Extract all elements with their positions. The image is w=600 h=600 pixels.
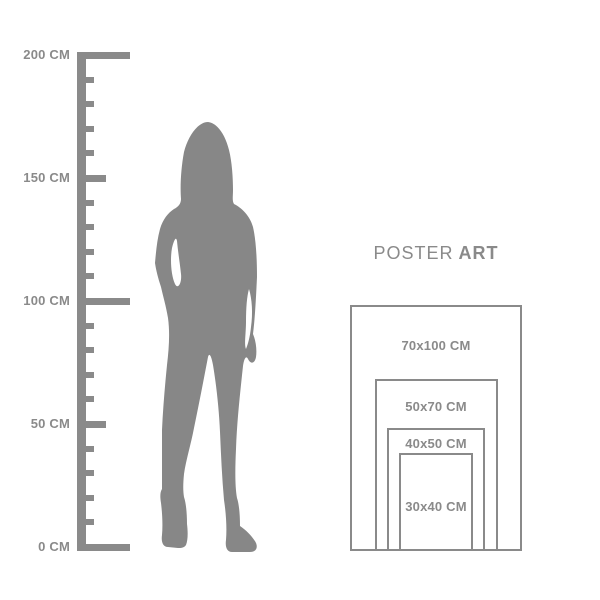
ruler-tick-minor [77,77,94,83]
ruler-tick-minor [77,273,94,279]
ruler-tick-major [77,175,106,182]
brand-title-bold: ART [459,243,499,263]
ruler-tick-minor [77,150,94,156]
brand-title-regular: POSTER [373,243,453,263]
ruler-tick-major [77,544,130,551]
ruler-tick-minor [77,224,94,230]
size-label-30x40: 30x40 CM [366,499,506,515]
brand-title: POSTERART [336,243,536,264]
ruler-label: 150 CM [0,170,70,186]
ruler-tick-major [77,421,106,428]
ruler-label: 100 CM [0,293,70,309]
ruler-tick-minor [77,101,94,107]
ruler-tick-minor [77,126,94,132]
ruler-tick-minor [77,249,94,255]
ruler-tick-minor [77,372,94,378]
ruler-label: 50 CM [0,416,70,432]
ruler-tick-minor [77,396,94,402]
ruler-tick-minor [77,495,94,501]
ruler-tick-major [77,298,130,305]
ruler-tick-minor [77,519,94,525]
ruler-tick-minor [77,200,94,206]
ruler-tick-minor [77,347,94,353]
size-label-40x50: 40x50 CM [366,436,506,452]
woman-silhouette [148,118,264,558]
ruler-tick-minor [77,470,94,476]
poster-size-guide: 200 CM150 CM100 CM50 CM0 CM POSTERART 70… [0,0,600,600]
size-label-50x70: 50x70 CM [366,399,506,415]
ruler-label: 200 CM [0,47,70,63]
ruler-tick-minor [77,446,94,452]
woman-silhouette-body [155,122,257,552]
ruler-label: 0 CM [0,539,70,555]
size-label-70x100: 70x100 CM [366,338,506,354]
ruler-tick-minor [77,323,94,329]
ruler-tick-major [77,52,130,59]
